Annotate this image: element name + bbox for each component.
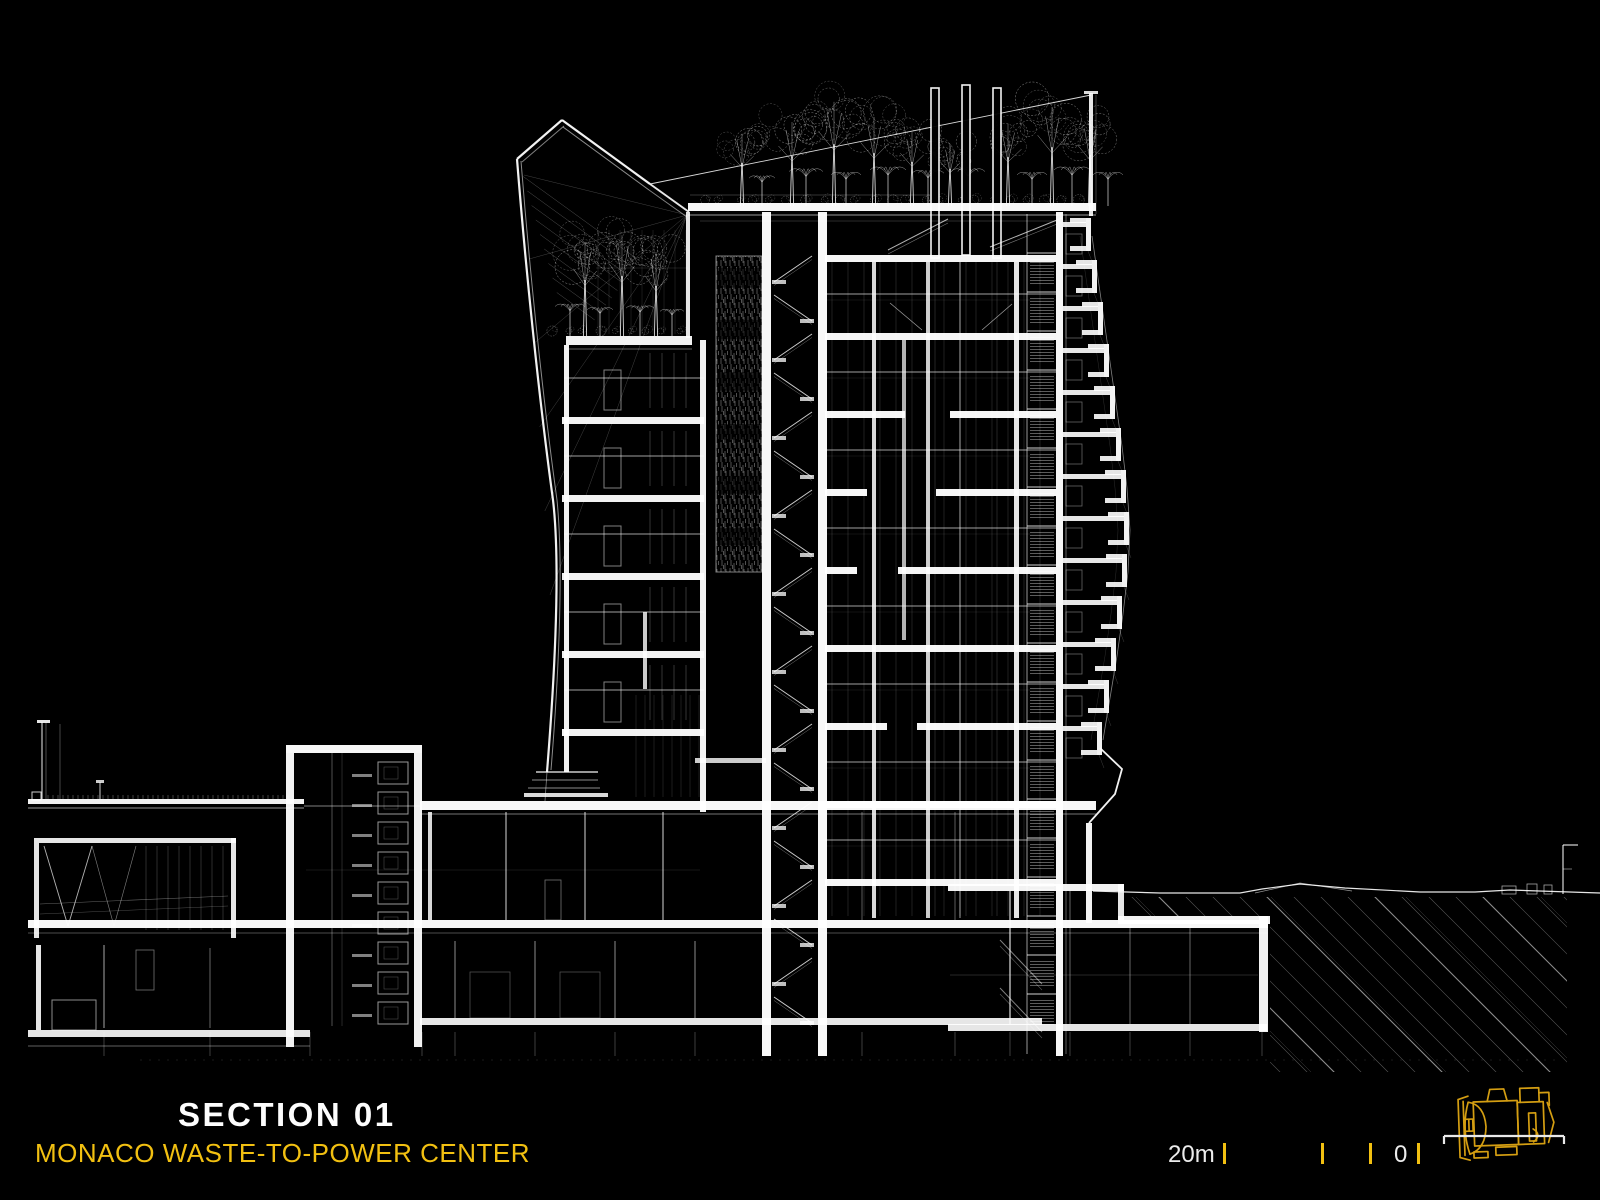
scale-max-label: 20m xyxy=(1168,1143,1215,1167)
section-linework xyxy=(28,85,1600,1060)
scale-zero-label: 0 xyxy=(1394,1143,1407,1167)
scale-tick xyxy=(1417,1143,1420,1164)
truck-outline xyxy=(1458,1087,1555,1160)
section-cut-line xyxy=(1444,1136,1564,1144)
drawing-sheet: SECTION 01 MONACO WASTE-TO-POWER CENTER … xyxy=(0,0,1600,1200)
scale-tick xyxy=(1369,1143,1372,1164)
scale-tick xyxy=(1321,1143,1324,1164)
garbage-truck-plan-icon xyxy=(1428,1074,1578,1174)
section-title: SECTION 01 xyxy=(178,1098,396,1131)
project-name: MONACO WASTE-TO-POWER CENTER xyxy=(35,1140,530,1166)
scale-tick xyxy=(1223,1143,1226,1164)
building-section-drawing xyxy=(0,0,1600,1200)
